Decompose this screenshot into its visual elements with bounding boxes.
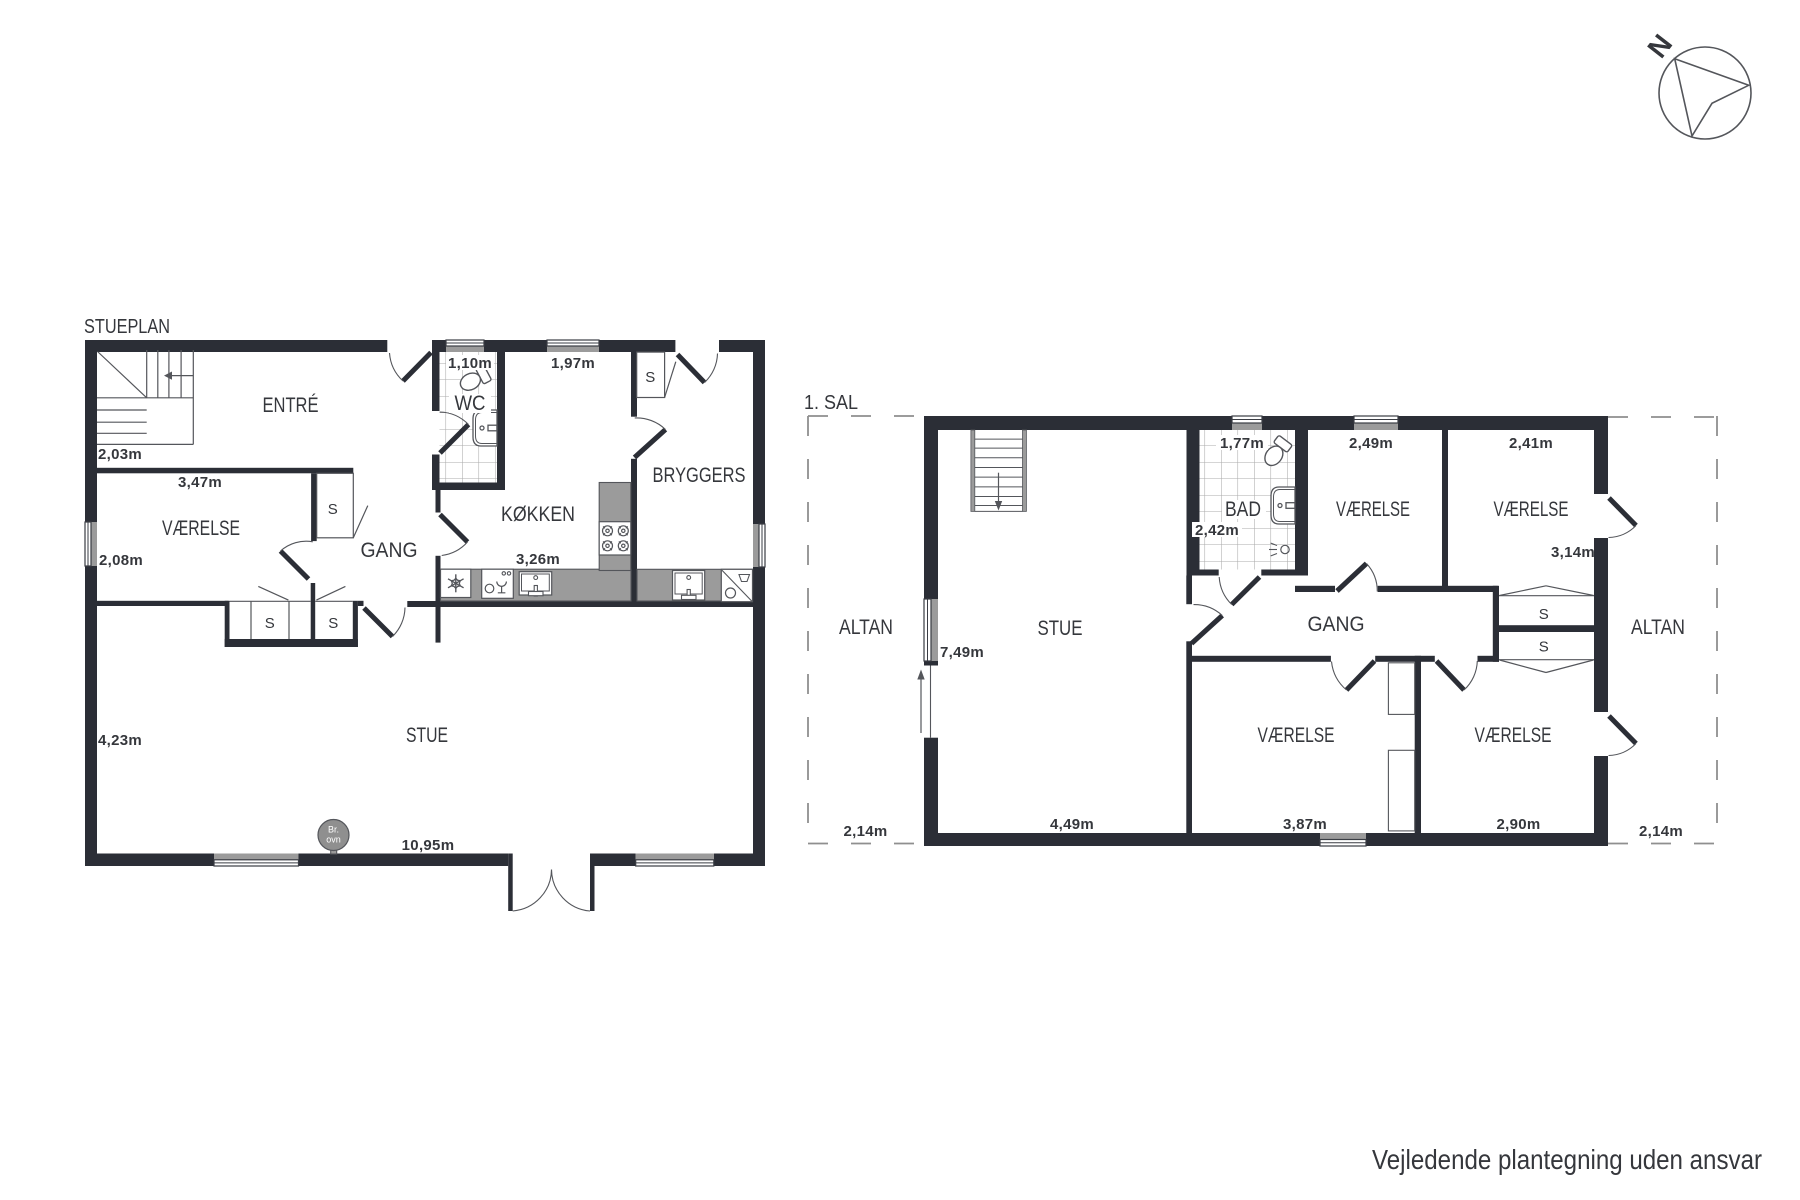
- svg-text:VÆRELSE: VÆRELSE: [1336, 498, 1410, 521]
- svg-text:S: S: [265, 615, 276, 632]
- svg-text:STUEPLAN: STUEPLAN: [84, 316, 170, 338]
- svg-text:S: S: [328, 615, 339, 632]
- svg-text:3,14m: 3,14m: [1551, 544, 1595, 561]
- svg-text:3,87m: 3,87m: [1283, 816, 1327, 833]
- svg-text:2,08m: 2,08m: [99, 552, 143, 569]
- svg-text:STUE: STUE: [406, 724, 448, 747]
- svg-text:2,41m: 2,41m: [1509, 435, 1553, 452]
- svg-text:ovn: ovn: [326, 835, 341, 845]
- svg-text:STUE: STUE: [1038, 617, 1083, 640]
- svg-text:VÆRELSE: VÆRELSE: [1475, 724, 1552, 747]
- svg-text:Br.: Br.: [328, 825, 339, 835]
- svg-text:ALTAN: ALTAN: [839, 616, 893, 639]
- svg-text:BAD: BAD: [1225, 498, 1261, 521]
- svg-text:2,49m: 2,49m: [1349, 435, 1393, 452]
- svg-text:2,90m: 2,90m: [1496, 816, 1540, 833]
- svg-text:S: S: [328, 501, 339, 518]
- svg-text:1. SAL: 1. SAL: [804, 392, 858, 414]
- svg-text:ENTRÉ: ENTRÉ: [263, 394, 319, 417]
- svg-text:2,03m: 2,03m: [98, 446, 142, 463]
- svg-text:1,97m: 1,97m: [551, 355, 595, 372]
- svg-text:Vejledende plantegning uden an: Vejledende plantegning uden ansvar: [1372, 1144, 1762, 1175]
- svg-text:VÆRELSE: VÆRELSE: [1494, 498, 1569, 521]
- svg-text:VÆRELSE: VÆRELSE: [162, 517, 240, 540]
- svg-text:10,95m: 10,95m: [402, 837, 455, 854]
- svg-text:2,14m: 2,14m: [1639, 823, 1683, 840]
- svg-text:7,49m: 7,49m: [940, 644, 984, 661]
- svg-text:3,47m: 3,47m: [178, 474, 222, 491]
- svg-text:S: S: [1539, 606, 1550, 623]
- svg-text:2,14m: 2,14m: [843, 823, 887, 840]
- svg-text:BRYGGERS: BRYGGERS: [653, 464, 746, 487]
- svg-text:4,49m: 4,49m: [1050, 816, 1094, 833]
- svg-text:1,77m: 1,77m: [1220, 435, 1264, 452]
- svg-text:4,23m: 4,23m: [98, 732, 142, 749]
- svg-text:2,42m: 2,42m: [1195, 522, 1239, 539]
- svg-text:1,10m: 1,10m: [448, 355, 492, 372]
- svg-text:S: S: [645, 369, 656, 386]
- svg-text:3,26m: 3,26m: [516, 551, 560, 568]
- svg-text:KØKKEN: KØKKEN: [501, 503, 575, 526]
- svg-text:S: S: [1539, 639, 1550, 656]
- svg-text:ALTAN: ALTAN: [1631, 616, 1685, 639]
- svg-text:GANG: GANG: [1308, 613, 1365, 636]
- svg-text:GANG: GANG: [361, 539, 418, 562]
- svg-text:VÆRELSE: VÆRELSE: [1258, 724, 1335, 747]
- svg-text:WC: WC: [455, 392, 486, 415]
